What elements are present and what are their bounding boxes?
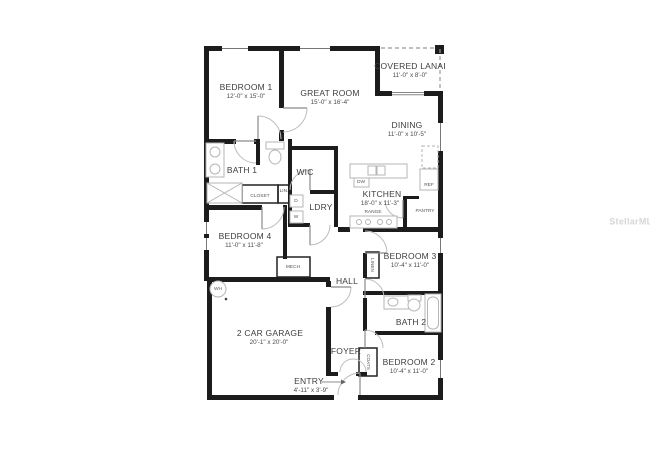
coats-label: COATS	[366, 354, 371, 370]
refrigerator-label: REF	[424, 183, 434, 188]
room-label-bedroom-2: BEDROOM 2	[383, 358, 436, 367]
watermark: StellarMLS	[609, 218, 650, 227]
room-dims-bedroom-1: 12'-0" x 15'-0"	[227, 93, 266, 99]
pantry-label: PANTRY	[415, 209, 434, 214]
room-label-bedroom-3: BEDROOM 3	[384, 252, 437, 261]
room-label-ldry: LDRY	[309, 203, 332, 212]
floor-plan-drawing	[0, 0, 650, 450]
room-label-foyer: FOYER	[331, 347, 361, 356]
washer-label: W	[294, 215, 299, 220]
room-dims-covered-lanai: 11'-0" x 8'-0"	[393, 72, 428, 78]
room-dims-bedroom-2: 10'-4" x 11'-0"	[390, 368, 428, 374]
floor-plan: BEDROOM 1 12'-0" x 15'-0" GREAT ROOM 15'…	[0, 0, 650, 450]
room-dims-entry: 4'-11" x 3'-9"	[294, 387, 329, 393]
room-label-kitchen: KITCHEN	[363, 190, 402, 199]
linen-small-label: LIN.	[280, 189, 289, 194]
entry-arrow	[322, 380, 346, 385]
linen-label: LINEN	[370, 258, 375, 272]
room-dims-kitchen: 18'-0" x 11'-3"	[361, 200, 399, 206]
room-dims-bedroom-3: 10'-4" x 11'-0"	[391, 262, 429, 268]
room-label-wic: WIC	[296, 168, 313, 177]
room-label-great-room: GREAT ROOM	[300, 89, 359, 98]
room-label-bath-1: BATH 1	[227, 166, 257, 175]
dishwasher-label: DW	[357, 180, 365, 185]
range-label: RANGE	[364, 210, 381, 215]
closet-label: CLOSET	[250, 194, 269, 199]
water-heater-label: WH	[214, 287, 222, 292]
room-label-hall: HALL	[336, 277, 358, 286]
room-label-bath-2: BATH 2	[396, 318, 426, 327]
room-dims-great-room: 15'-0" x 16'-4"	[311, 99, 350, 105]
room-label-covered-lanai: COVERED LANAI	[374, 62, 446, 71]
room-label-entry: ENTRY	[294, 377, 324, 386]
dryer-label: D	[294, 199, 297, 204]
room-label-dining: DINING	[392, 121, 423, 130]
mechanical-label: MECH	[286, 265, 300, 270]
room-dims-bedroom-4: 11'-0" x 11'-8"	[225, 242, 263, 248]
room-dims-garage: 20'-1" x 20'-0"	[250, 339, 289, 345]
room-label-garage: 2 CAR GARAGE	[237, 329, 303, 338]
room-label-bedroom-1: BEDROOM 1	[220, 83, 273, 92]
room-label-bedroom-4: BEDROOM 4	[219, 232, 272, 241]
room-dims-dining: 11'-0" x 10'-5"	[388, 131, 426, 137]
